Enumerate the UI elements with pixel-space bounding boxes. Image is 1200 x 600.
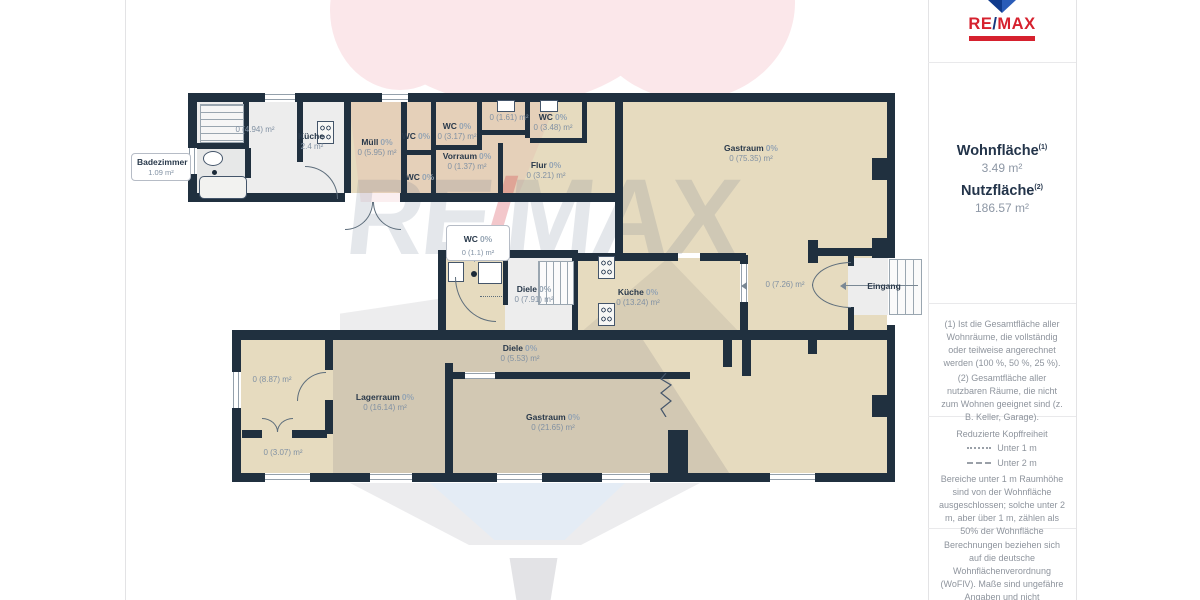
footnote-1: (1) Ist die Gesamtfläche aller Wohnräume… [938, 318, 1066, 370]
room-pct: 0% [568, 412, 580, 422]
room-label-kueche-24: Küche2.4 m² [298, 130, 326, 152]
metric-label: Wohnfläche [957, 143, 1039, 159]
room-label-887: 0 (8.87) m² [252, 374, 291, 385]
wall-segment [325, 400, 333, 434]
room-pct: 0% [380, 137, 392, 147]
wall-segment [438, 250, 446, 332]
remax-balloon-icon [986, 0, 1018, 13]
bathtub-icon [199, 176, 247, 199]
footnote-2: (2) Gesamtfläche aller nutzbaren Räume, … [938, 372, 1066, 424]
wall-segment [453, 372, 465, 379]
balloon-watermark-basket [505, 558, 562, 600]
opening-zigzag-icon [659, 373, 673, 422]
dashed-line-sample [967, 462, 991, 464]
entrance-arrow-icon [840, 282, 846, 290]
room-area: 0 (3.17) m² [437, 132, 476, 142]
wall-segment [477, 102, 482, 148]
room-label-diele-791: Diele0%0 (7.91) m² [514, 283, 553, 305]
stove-icon [598, 303, 615, 326]
wohnflaeche-value: 3.49 m² [928, 161, 1076, 175]
room-area: 2.4 m² [298, 142, 326, 152]
nutzflaeche-value: 186.57 m² [928, 201, 1076, 215]
room-pct: 0% [402, 392, 414, 402]
legend-note: Bereiche unter 1 m Raumhöhe sind von der… [938, 473, 1066, 538]
room-name: Gastraum [724, 143, 764, 153]
room-area: 0 (16.14) m² [356, 403, 414, 413]
room-name: Flur [531, 160, 547, 170]
legend-item-under-2m: Unter 2 m [928, 458, 1076, 468]
room-label-gastraum-2165: Gastraum0%0 (21.65) m² [526, 411, 580, 433]
dotted-line-sample [967, 447, 991, 449]
room-label-vorraum: Vorraum0%0 (1.37) m² [443, 150, 492, 172]
room-pct: 0% [525, 343, 537, 353]
room-name: Diele [517, 284, 537, 294]
room-pct: 0% [646, 287, 658, 297]
nutzflaeche-label: Nutzfläche(2) [928, 183, 1076, 199]
wall-segment [445, 363, 453, 473]
window [232, 372, 241, 408]
wohnflaeche-label: Wohnfläche(1) [928, 143, 1076, 159]
remax-tagline-bar [969, 36, 1035, 41]
room-area: 0 (3.48) m² [533, 123, 572, 133]
room-name: Diele [503, 343, 523, 353]
remax-logo: RE/MAX [928, 0, 1076, 41]
room-pct: 0% [766, 143, 778, 153]
room-label-lagerraum: Lagerraum0%0 (16.14) m² [356, 391, 414, 413]
room-area: 0 (1.61) m² [489, 113, 528, 123]
wall-segment [242, 430, 262, 438]
floorplan-canvas: RE/MAX Küche2.4 m² 0 (4.94) m² Müll0%0 (… [0, 0, 1200, 600]
badge-name: WC [464, 234, 478, 244]
metric-sup: (2) [1034, 184, 1043, 191]
balloon-watermark-skirt [350, 483, 700, 545]
wall-segment [808, 240, 818, 263]
wall-segment [400, 193, 615, 202]
door-arc [373, 202, 401, 230]
wall-segment [344, 93, 351, 193]
room-name: WC [443, 121, 457, 131]
room-label-kueche-1324: Küche0%0 (13.24) m² [616, 286, 660, 308]
room-area: 0 (75.35) m² [724, 154, 778, 164]
room-label-wc-small-top: WC0% [402, 130, 430, 142]
metric-label: Nutzfläche [961, 183, 1034, 199]
legend-item-under-1m: Unter 1 m [928, 443, 1076, 453]
room-pct: 0% [418, 131, 430, 141]
room-name: WC [402, 131, 416, 141]
wall-segment [582, 102, 587, 138]
room-label-726: 0 (7.26) m² [765, 279, 804, 290]
room-label-diele-553: Diele0%0 (5.53) m² [500, 342, 539, 364]
wall-segment [530, 138, 587, 143]
room-area: 0 (3.07) m² [263, 448, 302, 458]
room-label-muell: Müll0%0 (5.95) m² [357, 136, 396, 158]
room-area: 0 (1.37) m² [443, 162, 492, 172]
wall-segment [848, 307, 854, 332]
wall-segment [503, 255, 508, 305]
badge-area: 0 (1.1) m² [452, 248, 504, 257]
room-label-wc-348: WC0%0 (3.48) m² [533, 111, 572, 133]
badge-pct: 0% [480, 234, 492, 244]
frame-line-left [125, 0, 126, 600]
room-area: 0 (7.26) m² [765, 280, 804, 290]
balloon-watermark-gray-tint [340, 290, 440, 333]
room-name: Müll [361, 137, 378, 147]
wall-segment [615, 93, 623, 261]
sidebar-border-left [928, 0, 929, 600]
brand-re: RE [968, 15, 992, 33]
room-area: 0 (5.53) m² [500, 354, 539, 364]
door-arrow-icon [741, 282, 747, 290]
stove-icon [598, 256, 615, 279]
wall-segment [482, 130, 530, 135]
toilet-icon [212, 170, 217, 175]
wall-segment [872, 395, 895, 417]
washbasin-icon [203, 151, 223, 166]
balloon-watermark-funnel [430, 483, 625, 540]
wall-segment [407, 150, 431, 155]
legend-item-label: Unter 2 m [997, 458, 1037, 468]
room-pct: 0% [549, 160, 561, 170]
room-label-161: 0 (1.61) m² [489, 112, 528, 123]
sink-icon [497, 100, 515, 112]
room-area: 0 (8.87) m² [252, 375, 291, 385]
room-pct: 0% [555, 112, 567, 122]
room-name: Küche [298, 131, 324, 141]
badge-wc-11: WC0% 0 (1.1) m² [446, 225, 510, 261]
brand-max: MAX [997, 15, 1035, 33]
wall-segment [197, 143, 249, 149]
room-label-wc-317: WC0%0 (3.17) m² [437, 120, 476, 142]
floor-gastraum-75 [623, 102, 887, 253]
door-arc [345, 202, 373, 230]
room-label-307: 0 (3.07) m² [263, 447, 302, 458]
sidebar-divider [928, 303, 1076, 304]
window [382, 93, 408, 102]
badge-name: Badezimmer [137, 157, 185, 167]
room-label-gastraum-7535: Gastraum0%0 (75.35) m² [724, 142, 778, 164]
wall-segment [245, 148, 251, 178]
room-area: 0 (3.21) m² [526, 171, 565, 181]
window [497, 473, 542, 482]
remax-wordmark: RE/MAX [928, 15, 1076, 34]
metric-sup: (1) [1039, 144, 1048, 151]
room-pct: 0% [459, 121, 471, 131]
room-name: WC [406, 172, 420, 182]
wall-segment [292, 430, 327, 438]
window [370, 473, 412, 482]
room-name: Vorraum [443, 151, 477, 161]
wall-segment [723, 339, 732, 367]
room-label-wc-small-lower: WC0% [406, 171, 434, 183]
room-name: Lagerraum [356, 392, 400, 402]
room-area: 0 (21.65) m² [526, 423, 580, 433]
wall-segment [498, 143, 503, 198]
legend-item-label: Unter 1 m [997, 443, 1037, 453]
room-pct: 0% [479, 151, 491, 161]
window [265, 93, 295, 102]
room-label-494: 0 (4.94) m² [235, 124, 274, 135]
window [265, 473, 310, 482]
wall-segment [578, 253, 678, 261]
badge-area: 1.09 m² [137, 168, 185, 177]
room-area: 0 (4.94) m² [235, 125, 274, 135]
wall-segment [872, 238, 895, 258]
eingang-label: Eingang [867, 281, 901, 291]
room-area: 0 (13.24) m² [616, 298, 660, 308]
window [465, 372, 495, 379]
wall-segment [668, 430, 688, 475]
legend-title: Reduzierte Kopffreiheit [938, 428, 1066, 441]
wall-segment [325, 339, 333, 370]
room-area: 0 (7.91) m² [514, 295, 553, 305]
wall-segment [872, 158, 895, 180]
wall-segment [742, 339, 751, 376]
badge-badezimmer: Badezimmer 1.09 m² [131, 153, 191, 181]
room-label-flur: Flur0%0 (3.21) m² [526, 159, 565, 181]
balloon-watermark-dome [585, 0, 795, 100]
room-area: 0 (5.95) m² [357, 148, 396, 158]
sidebar-border-right [1076, 0, 1077, 600]
room-pct: 0% [539, 284, 551, 294]
room-name: WC [539, 112, 553, 122]
wall-segment [808, 339, 817, 354]
window [770, 473, 815, 482]
sidebar-divider [928, 62, 1076, 63]
room-name: Gastraum [526, 412, 566, 422]
disclaimer: Berechnungen beziehen sich auf die deuts… [938, 539, 1066, 600]
floor-lower-band [241, 339, 887, 473]
room-pct: 0% [422, 172, 434, 182]
window [602, 473, 650, 482]
room-name: Küche [618, 287, 644, 297]
